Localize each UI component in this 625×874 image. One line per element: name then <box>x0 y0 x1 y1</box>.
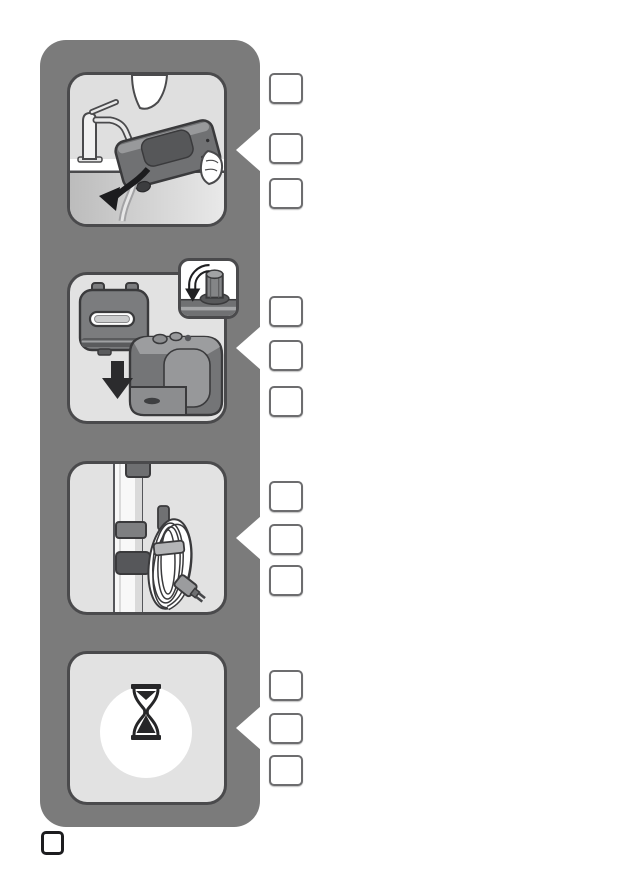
down-arrow-icon <box>102 361 133 399</box>
cap-unscrew-icon <box>181 261 236 316</box>
step-2-pointer <box>236 326 261 370</box>
pole-top-clip <box>126 464 150 477</box>
manual-page <box>0 0 625 874</box>
step-3-reference-box-3 <box>269 565 303 596</box>
step-1-reference-box-3 <box>269 178 303 209</box>
cap-rotation-inset <box>178 258 239 319</box>
pole-middle-clip <box>116 522 146 538</box>
step-4-reference-box-3 <box>269 755 303 786</box>
wait-icon <box>70 654 224 802</box>
step-4-pointer <box>236 706 261 750</box>
step-4-reference-box-1 <box>269 670 303 701</box>
step-2-reference-box-2 <box>269 340 303 371</box>
page-number-box <box>41 831 64 855</box>
step-3-reference-box-2 <box>269 524 303 555</box>
second-hand-icon <box>201 151 222 184</box>
base-unit-icon <box>130 333 222 416</box>
cord-storage-icon <box>70 464 224 612</box>
step-2-reference-box-1 <box>269 296 303 327</box>
step-1-illustration <box>67 72 227 227</box>
step-4-illustration <box>67 651 227 805</box>
step-3-reference-box-1 <box>269 481 303 512</box>
cord-tie <box>153 540 184 555</box>
pole-lower-clip <box>116 552 150 574</box>
step-1-pointer <box>236 128 261 172</box>
step-1-reference-box-1 <box>269 73 303 104</box>
tank-valve-nub <box>98 349 111 355</box>
step-4-reference-box-2 <box>269 713 303 744</box>
tank-cap-icon <box>206 270 222 298</box>
step-3-illustration <box>67 461 227 615</box>
step-3-pointer <box>236 516 261 560</box>
tank-at-sink-icon <box>70 75 224 224</box>
step-2-reference-box-3 <box>269 386 303 417</box>
step-1-reference-box-2 <box>269 133 303 164</box>
